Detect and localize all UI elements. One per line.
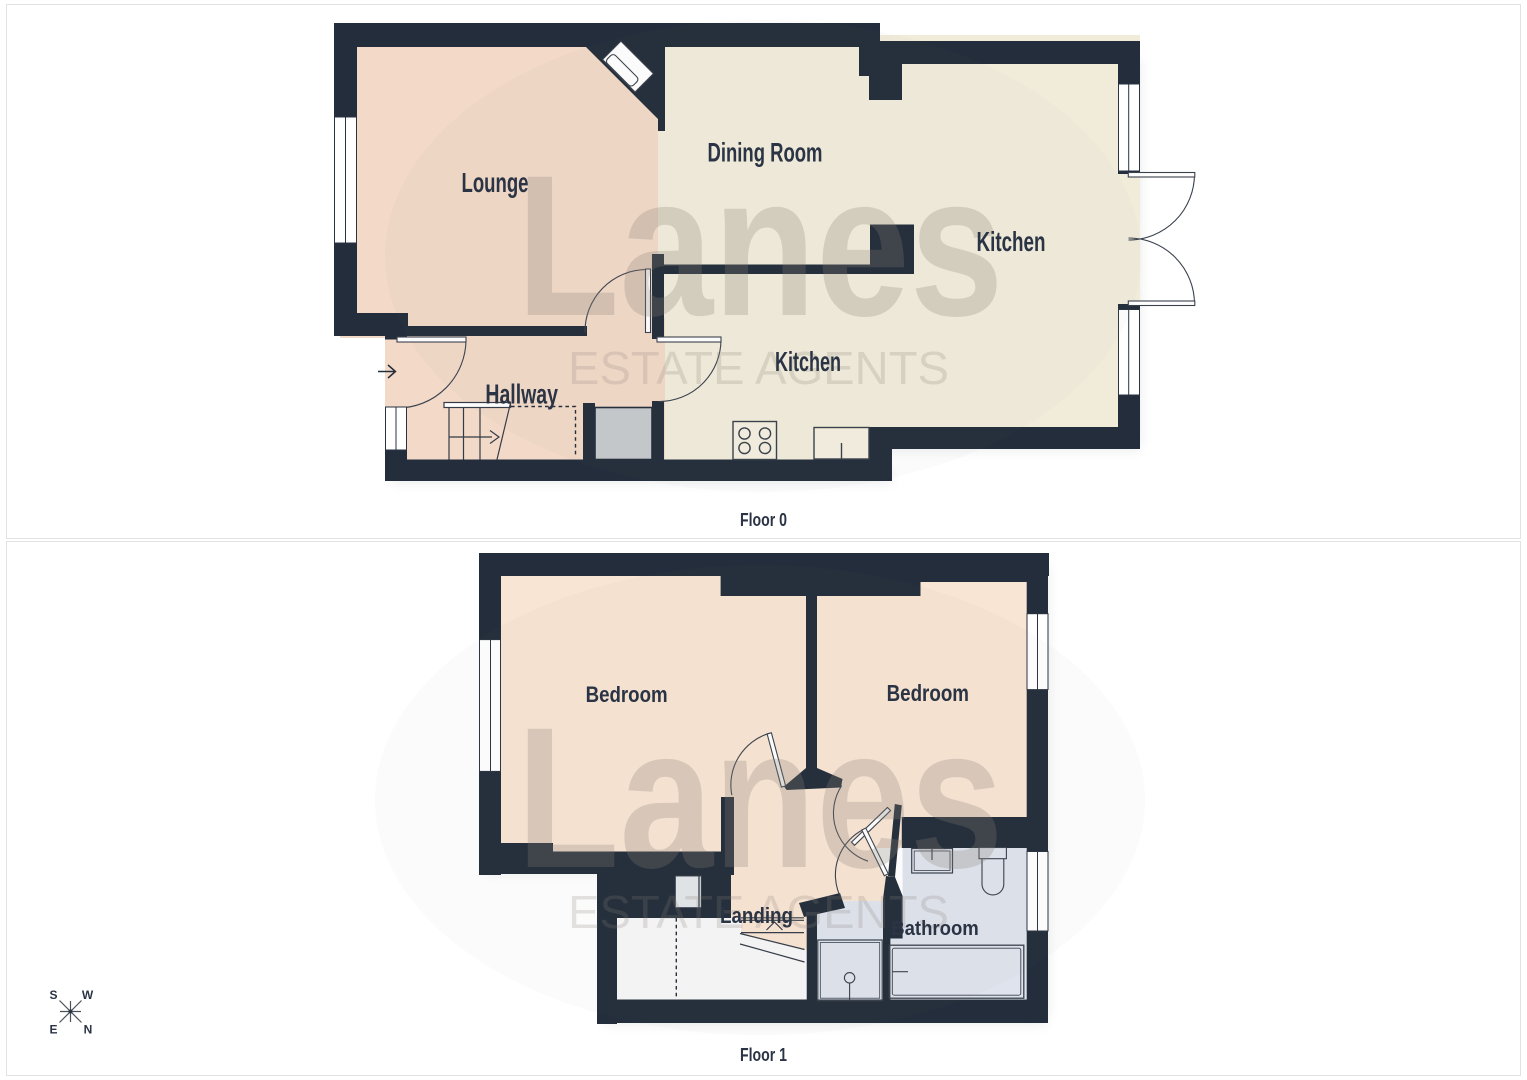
svg-text:Hallway: Hallway (485, 379, 558, 410)
svg-text:Kitchen: Kitchen (775, 346, 841, 377)
svg-text:Bedroom: Bedroom (887, 680, 969, 706)
svg-text:E: E (49, 1023, 57, 1037)
svg-text:N: N (84, 1023, 93, 1037)
svg-text:Dining Room: Dining Room (708, 138, 823, 168)
svg-text:S: S (49, 988, 57, 1002)
svg-text:Bedroom: Bedroom (586, 682, 668, 707)
svg-text:Lanes: Lanes (517, 685, 1004, 910)
svg-text:Bathroom: Bathroom (891, 918, 979, 940)
svg-text:Kitchen: Kitchen (977, 226, 1046, 257)
svg-text:ESTATE AGENTS: ESTATE AGENTS (568, 342, 949, 394)
svg-text:W: W (82, 988, 94, 1002)
svg-text:Floor 1: Floor 1 (740, 1045, 787, 1065)
svg-text:Landing: Landing (720, 903, 793, 928)
svg-text:Floor 0: Floor 0 (740, 510, 787, 530)
svg-text:Lounge: Lounge (462, 167, 529, 198)
